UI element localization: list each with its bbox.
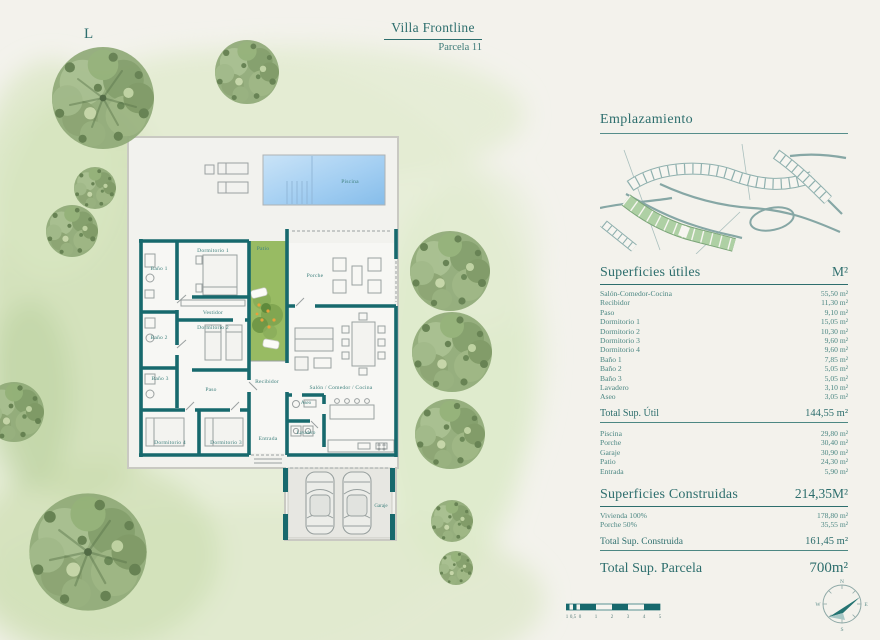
emplazamiento-heading: Emplazamiento xyxy=(600,112,848,128)
table-row: Dormitorio 210,30 m² xyxy=(600,327,848,336)
table-row: Dormitorio 39,60 m² xyxy=(600,336,848,345)
pool: Piscina xyxy=(263,155,385,205)
scale-label: 2 xyxy=(611,615,614,620)
row-label: Piscina xyxy=(600,429,622,438)
row-value: 30,90 m² xyxy=(821,448,848,457)
table-row: Baño 35,05 m² xyxy=(600,374,848,383)
table-row: Piscina29,80 m² xyxy=(600,429,848,438)
info-panel: Emplazamiento xyxy=(600,112,848,577)
compass-w: W xyxy=(815,602,821,608)
row-label: Dormitorio 3 xyxy=(600,336,640,345)
construidas-rows: Vivienda 100%178,80 m² Porche 50%35,55 m… xyxy=(600,507,848,530)
room-label-dormitorio3: Dormitorio 3 xyxy=(210,440,242,446)
row-label: Aseo xyxy=(600,392,616,401)
room-label-paso: Paso xyxy=(205,387,216,393)
room-label-garaje: Garaje xyxy=(374,504,388,509)
parcel-ladder-right xyxy=(776,154,828,200)
row-label: Entrada xyxy=(600,467,624,476)
parcela-label: Total Sup. Parcela xyxy=(600,561,702,577)
table-row: Garaje30,90 m² xyxy=(600,448,848,457)
total-sup-parcela: Total Sup. Parcela 700m² xyxy=(600,551,848,577)
row-value: 30,40 m² xyxy=(821,438,848,447)
compass: N E S W xyxy=(814,576,870,632)
superficies-utiles-header: Superficies útiles M² xyxy=(600,260,848,285)
title-rule xyxy=(384,39,482,40)
scale-label: 1 xyxy=(595,615,598,620)
total-sup-util: Total Sup. Útil 144,55 m² xyxy=(600,402,848,423)
superficies-construidas-value: 214,35M² xyxy=(795,486,848,502)
compass-arrow xyxy=(829,597,860,617)
compass-n: N xyxy=(840,579,844,585)
table-row: Paso9,10 m² xyxy=(600,308,848,317)
row-label: Garaje xyxy=(600,448,620,457)
row-value: 9,60 m² xyxy=(825,345,848,354)
table-row: Dormitorio 115,05 m² xyxy=(600,317,848,326)
row-value: 9,10 m² xyxy=(825,308,848,317)
page-title: Villa Frontline xyxy=(384,20,482,36)
table-row: Lavadero3,10 m² xyxy=(600,383,848,392)
row-label: Porche 50% xyxy=(600,520,637,529)
row-label: Recibidor xyxy=(600,298,630,307)
emplazamiento-rule xyxy=(600,133,848,134)
patio-garden: Patio xyxy=(249,241,287,361)
room-label-entrada: Entrada xyxy=(259,436,278,442)
site-map xyxy=(600,142,848,254)
total-value: 144,55 m² xyxy=(805,408,848,419)
room-label-bano2: Baño 2 xyxy=(150,335,167,341)
parcela-value: 700m² xyxy=(809,560,848,577)
room-label-patio: Patio xyxy=(257,246,270,252)
room-label-dormitorio2: Dormitorio 2 xyxy=(197,325,229,331)
room-label-recibidor: Recibidor xyxy=(255,379,279,385)
row-value: 5,05 m² xyxy=(825,374,848,383)
room-label-salon: Salón / Comedor / Cocina xyxy=(310,385,373,391)
corner-mark: L xyxy=(84,26,93,43)
total-label: Total Sup. Construida xyxy=(600,537,683,547)
page-subtitle: Parcela 11 xyxy=(384,42,482,53)
room-label-dormitorio4: Dormitorio 4 xyxy=(154,440,186,446)
room-label-bano3: Baño 3 xyxy=(151,376,168,382)
row-label: Baño 2 xyxy=(600,364,622,373)
superficies-construidas-header: Superficies Construidas 214,35M² xyxy=(600,482,848,507)
row-value: 3,10 m² xyxy=(825,383,848,392)
row-label: Porche xyxy=(600,438,621,447)
table-row: Baño 17,85 m² xyxy=(600,355,848,364)
row-value: 178,80 m² xyxy=(817,511,848,520)
superficies-utiles-rows: Salón-Comedor-Cocina55,50 m² Recibidor11… xyxy=(600,285,848,402)
room-label-bano1: Baño 1 xyxy=(150,266,167,272)
table-row: Salón-Comedor-Cocina55,50 m² xyxy=(600,289,848,298)
row-value: 3,05 m² xyxy=(825,392,848,401)
table-row: Porche30,40 m² xyxy=(600,438,848,447)
row-label: Baño 1 xyxy=(600,355,622,364)
room-label-lavadero: Lavadero xyxy=(297,431,316,436)
row-value: 10,30 m² xyxy=(821,327,848,336)
room-label-porche: Porche xyxy=(307,273,324,279)
brochure-page: Piscina Patio xyxy=(0,0,880,640)
row-label: Dormitorio 4 xyxy=(600,345,640,354)
row-label: Dormitorio 2 xyxy=(600,327,640,336)
row-label: Baño 3 xyxy=(600,374,622,383)
row-value: 24,30 m² xyxy=(821,457,848,466)
scale-label: 0 xyxy=(579,615,582,620)
parcel-ladder-bottomleft xyxy=(604,224,634,248)
row-value: 5,05 m² xyxy=(825,364,848,373)
row-value: 29,80 m² xyxy=(821,429,848,438)
row-label: Paso xyxy=(600,308,614,317)
table-row: Baño 25,05 m² xyxy=(600,364,848,373)
table-row: Aseo3,05 m² xyxy=(600,392,848,401)
row-value: 5,90 m² xyxy=(825,467,848,476)
row-value: 55,50 m² xyxy=(821,289,848,298)
table-row: Patio24,30 m² xyxy=(600,457,848,466)
table-row: Entrada5,90 m² xyxy=(600,467,848,476)
scale-bar: 1 0,5 0 1 2 3 4 5 xyxy=(566,603,670,625)
room-label-piscina: Piscina xyxy=(341,179,359,185)
scale-label: 0,5 xyxy=(570,615,577,620)
superficies-utiles-unit: M² xyxy=(832,264,848,280)
table-row: Recibidor11,30 m² xyxy=(600,298,848,307)
room-label-dormitorio1: Dormitorio 1 xyxy=(197,248,229,254)
title-block: Villa Frontline Parcela 11 xyxy=(384,20,482,53)
row-value: 15,05 m² xyxy=(821,317,848,326)
table-row: Porche 50%35,55 m² xyxy=(600,520,848,529)
room-label-aseo: Aseo xyxy=(301,401,312,406)
table-row: Dormitorio 49,60 m² xyxy=(600,345,848,354)
total-label: Total Sup. Útil xyxy=(600,408,659,419)
compass-e: E xyxy=(864,602,868,608)
total-value: 161,45 m² xyxy=(805,536,848,547)
row-value: 11,30 m² xyxy=(821,298,848,307)
row-value: 9,60 m² xyxy=(825,336,848,345)
row-label: Patio xyxy=(600,457,616,466)
superficies-utiles-title: Superficies útiles xyxy=(600,265,700,281)
highlighted-parcels xyxy=(626,200,734,245)
scale-label: 1 xyxy=(566,615,569,620)
parcel-ladder-top xyxy=(630,169,812,186)
row-label: Dormitorio 1 xyxy=(600,317,640,326)
total-sup-construida: Total Sup. Construida 161,45 m² xyxy=(600,530,848,551)
scale-label: 4 xyxy=(643,615,646,620)
scale-label: 5 xyxy=(659,615,662,620)
compass-s: S xyxy=(840,627,843,632)
table-row: Vivienda 100%178,80 m² xyxy=(600,511,848,520)
row-label: Lavadero xyxy=(600,383,629,392)
row-value: 35,55 m² xyxy=(821,520,848,529)
row-label: Vivienda 100% xyxy=(600,511,647,520)
scale-label: 3 xyxy=(627,615,630,620)
superficies-construidas-title: Superficies Construidas xyxy=(600,487,738,503)
floor-plan-illustration: Piscina Patio xyxy=(0,0,580,640)
row-label: Salón-Comedor-Cocina xyxy=(600,289,672,298)
room-label-vestidor: Vestidor xyxy=(203,310,223,316)
row-value: 7,85 m² xyxy=(825,355,848,364)
exteriores-rows: Piscina29,80 m² Porche30,40 m² Garaje30,… xyxy=(600,423,848,476)
